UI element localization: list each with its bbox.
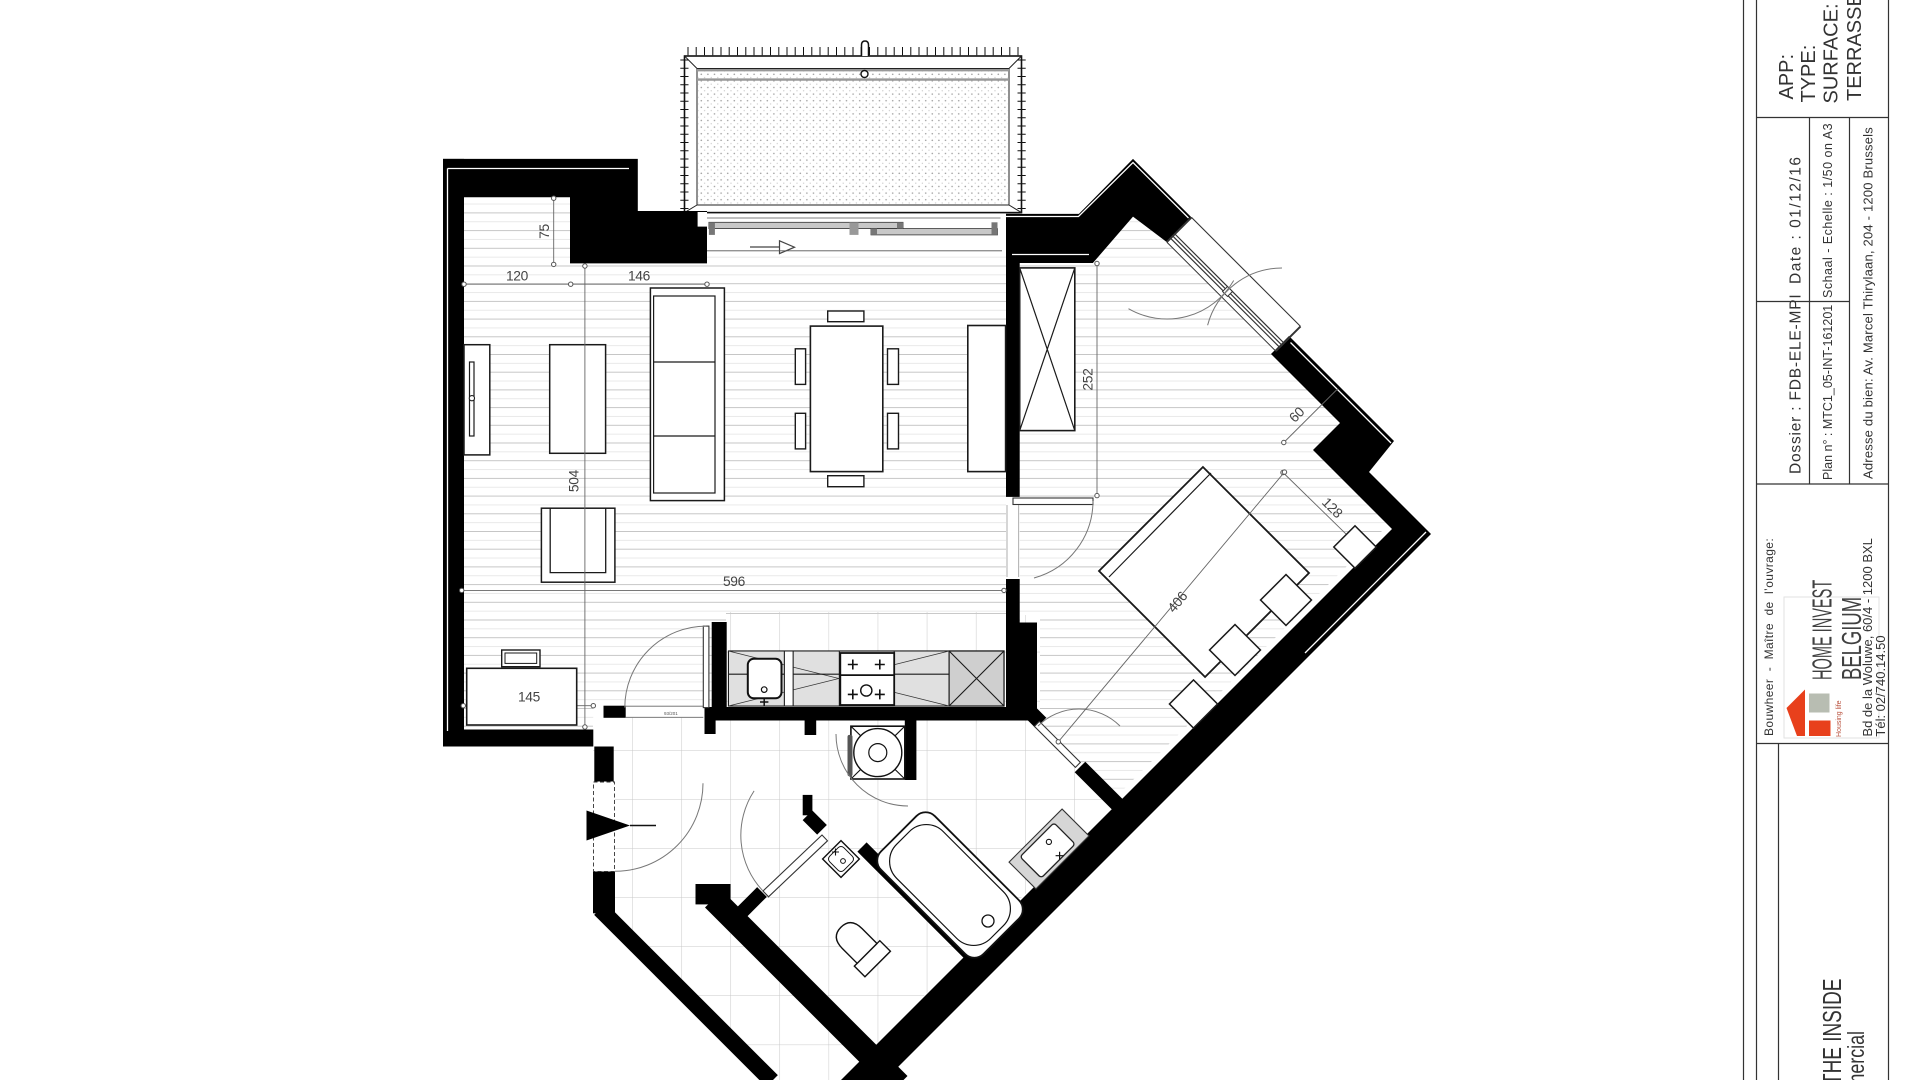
svg-text:145: 145 xyxy=(518,690,541,705)
svg-text:TERRASSE:: TERRASSE: xyxy=(1844,0,1866,101)
svg-text:75: 75 xyxy=(537,224,552,239)
svg-text:TYPE:: TYPE: xyxy=(1798,45,1820,103)
svg-text:Plan n° : MTC1_05-INT-161201: Plan n° : MTC1_05-INT-161201 xyxy=(1821,305,1835,480)
svg-text:Adresse du bien: Av. Marcel Th: Adresse du bien: Av. Marcel Thirylaan, 2… xyxy=(1860,127,1875,479)
svg-text:SURFACE:: SURFACE: xyxy=(1821,3,1843,103)
svg-text:120: 120 xyxy=(506,269,529,284)
svg-text:93/201: 93/201 xyxy=(664,711,678,716)
svg-text:Schaal - Echelle : 1/50 on A3: Schaal - Echelle : 1/50 on A3 xyxy=(1821,123,1835,298)
svg-text:APP:: APP: xyxy=(1776,54,1798,100)
svg-text:Date : 01/12/16: Date : 01/12/16 xyxy=(1787,156,1804,285)
svg-text:Dossier : FDB-ELE-MPI: Dossier : FDB-ELE-MPI xyxy=(1787,294,1804,474)
svg-text:HOME INVEST: HOME INVEST xyxy=(1806,580,1837,680)
svg-text:146: 146 xyxy=(628,269,651,284)
svg-text:596: 596 xyxy=(723,574,746,589)
svg-text:Housing life: Housing life xyxy=(1836,700,1843,737)
svg-text:Tél: 02/740.14.50: Tél: 02/740.14.50 xyxy=(1873,635,1888,736)
svg-text:504: 504 xyxy=(567,469,582,492)
svg-text:252: 252 xyxy=(1081,368,1096,390)
svg-text:Commercial: Commercial xyxy=(1844,1031,1870,1080)
svg-text:Bouwheer - Maître de l’ouv: Bouwheer - Maître de l’ouvrage: xyxy=(1762,538,1776,736)
svg-text:THE INSIDE: THE INSIDE xyxy=(1817,979,1847,1080)
